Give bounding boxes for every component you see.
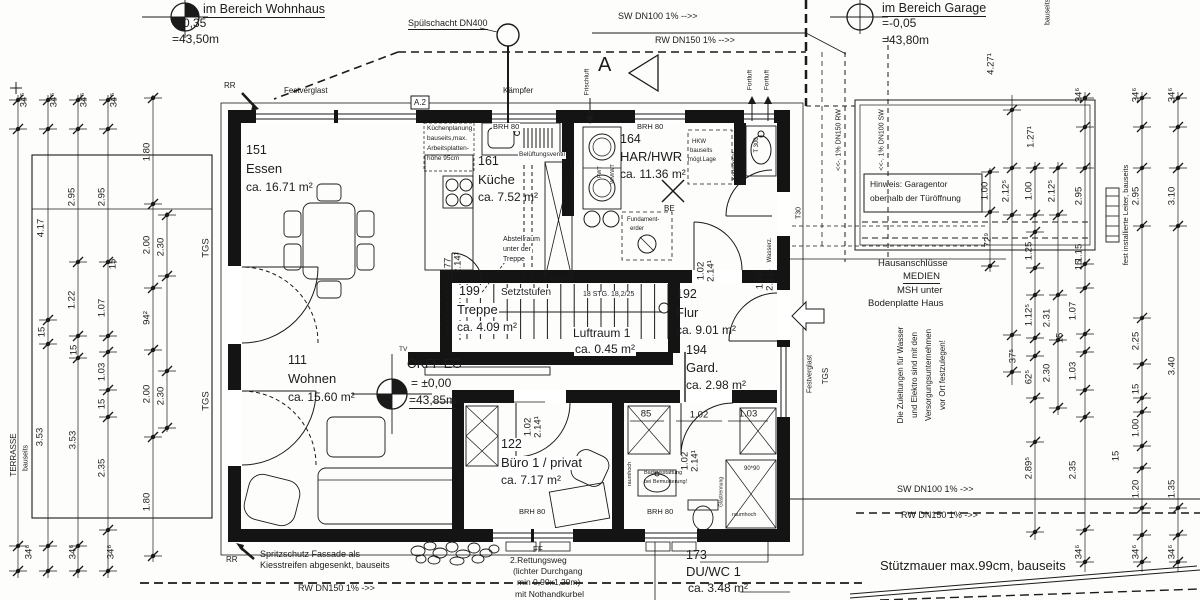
bath-fixtures xyxy=(628,406,776,530)
gravel-stones xyxy=(411,542,499,565)
garage-outline xyxy=(790,0,1119,262)
vent-arrows xyxy=(236,55,772,559)
staircase xyxy=(447,284,685,402)
dimension-chains xyxy=(9,92,1187,578)
kitchen-fixtures xyxy=(424,123,572,280)
floorplan-linework xyxy=(0,0,1200,600)
level-markers xyxy=(142,0,888,434)
utility-fixtures xyxy=(583,126,776,260)
floorplan-drawing: im Bereich Wohnhaus =-0,35 =43,50m im Be… xyxy=(0,0,1200,600)
wall-openings xyxy=(228,110,790,542)
entrance-arrow-icon xyxy=(792,302,824,330)
walls xyxy=(228,110,790,542)
